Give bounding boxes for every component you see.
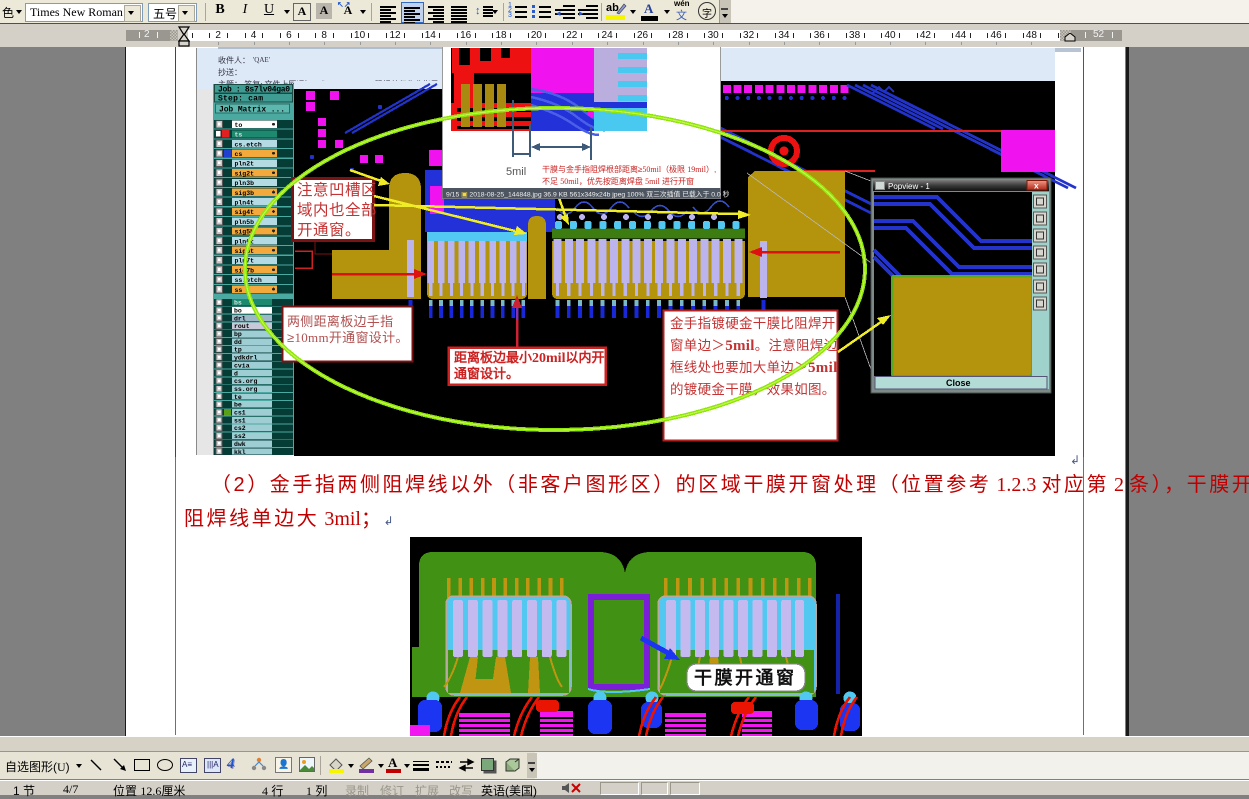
svg-text:ts: ts (235, 132, 243, 139)
svg-text:sig4t: sig4t (235, 209, 255, 216)
svg-text:金手指镀硬金干膜比阻焊开: 金手指镀硬金干膜比阻焊开 (670, 315, 836, 331)
svg-text:x: x (1034, 181, 1039, 191)
svg-text:cs.org: cs.org (234, 378, 258, 385)
svg-text:be: be (234, 402, 242, 409)
svg-text:两侧距离板边手指: 两侧距离板边手指 (287, 314, 393, 329)
svg-text:pln5b: pln5b (235, 219, 255, 226)
svg-text:≥10mm开通窗设计。: ≥10mm开通窗设计。 (287, 330, 409, 345)
svg-text:9/15 ▣ 2018-08-25_144848.jpg: 9/15 ▣ 2018-08-25_144848.jpg 36.9 KB 561… (446, 190, 730, 199)
svg-text:bs: bs (234, 300, 242, 307)
svg-text:pln2t: pln2t (235, 161, 255, 168)
svg-text:d: d (234, 370, 238, 377)
svg-text:Popview - 1: Popview - 1 (888, 182, 930, 191)
svg-text:干膜开通窗: 干膜开通窗 (694, 667, 797, 688)
svg-text:注意凹槽区: 注意凹槽区 (297, 180, 377, 199)
svg-text:dwk: dwk (234, 441, 246, 448)
svg-text:sig2t: sig2t (235, 170, 255, 177)
svg-text:cs: cs (235, 151, 243, 158)
svg-text:bp: bp (234, 331, 242, 338)
svg-text:dd: dd (234, 339, 242, 346)
svg-text:to: to (235, 122, 243, 129)
svg-text:drl: drl (234, 315, 246, 322)
svg-text:pln3b: pln3b (235, 180, 255, 187)
svg-text:5mil: 5mil (506, 166, 526, 178)
svg-text:te: te (234, 394, 242, 401)
svg-text:收件人：: 收件人： (218, 55, 250, 65)
svg-text:rout: rout (234, 323, 250, 330)
svg-text:bo: bo (234, 308, 242, 315)
svg-text:开通窗。: 开通窗。 (297, 221, 361, 239)
svg-text:Close: Close (946, 378, 971, 388)
svg-text:ss2: ss2 (234, 433, 246, 440)
svg-text:pln4t: pln4t (235, 200, 255, 207)
svg-text:cs1: cs1 (234, 410, 246, 417)
svg-text:ydkdrl: ydkdrl (234, 355, 258, 362)
svg-text:sig3b: sig3b (235, 190, 255, 197)
svg-text:框线处也要加大单边＞5mil: 框线处也要加大单边＞5mil (670, 360, 838, 376)
svg-text:域内也全部: 域内也全部 (297, 201, 377, 219)
svg-text:Step: cam: Step: cam (218, 94, 263, 103)
svg-text:cs.etch: cs.etch (235, 141, 262, 148)
svg-text:cs2: cs2 (234, 425, 246, 432)
svg-text:窗单边＞5mil。注意阻焊边: 窗单边＞5mil。注意阻焊边 (670, 337, 838, 354)
svg-text:tp: tp (234, 347, 242, 354)
svg-text:干膜与金手指阻焊根部距离≥50mil（极限 19mil）,: 干膜与金手指阻焊根部距离≥50mil（极限 19mil）, (542, 164, 716, 174)
svg-text:kkl: kkl (234, 449, 246, 456)
svg-text:ss.org: ss.org (234, 386, 258, 393)
svg-text:通窗设计。: 通窗设计。 (454, 366, 519, 381)
svg-text:抄送：: 抄送： (218, 67, 242, 77)
svg-text:ss.etch: ss.etch (235, 277, 262, 284)
svg-text:'QAE': 'QAE' (253, 56, 270, 64)
svg-text:ss: ss (235, 287, 243, 294)
svg-text:距离板边最小20mil以内开: 距离板边最小20mil以内开 (454, 350, 604, 366)
svg-text:Job Matrix ...: Job Matrix ... (219, 106, 285, 115)
svg-text:不足 50mil，优先按距离焊盘 5mil 进行开窗: 不足 50mil，优先按距离焊盘 5mil 进行开窗 (542, 176, 694, 186)
svg-text:cvia: cvia (234, 362, 250, 369)
svg-text:ss1: ss1 (234, 417, 246, 424)
